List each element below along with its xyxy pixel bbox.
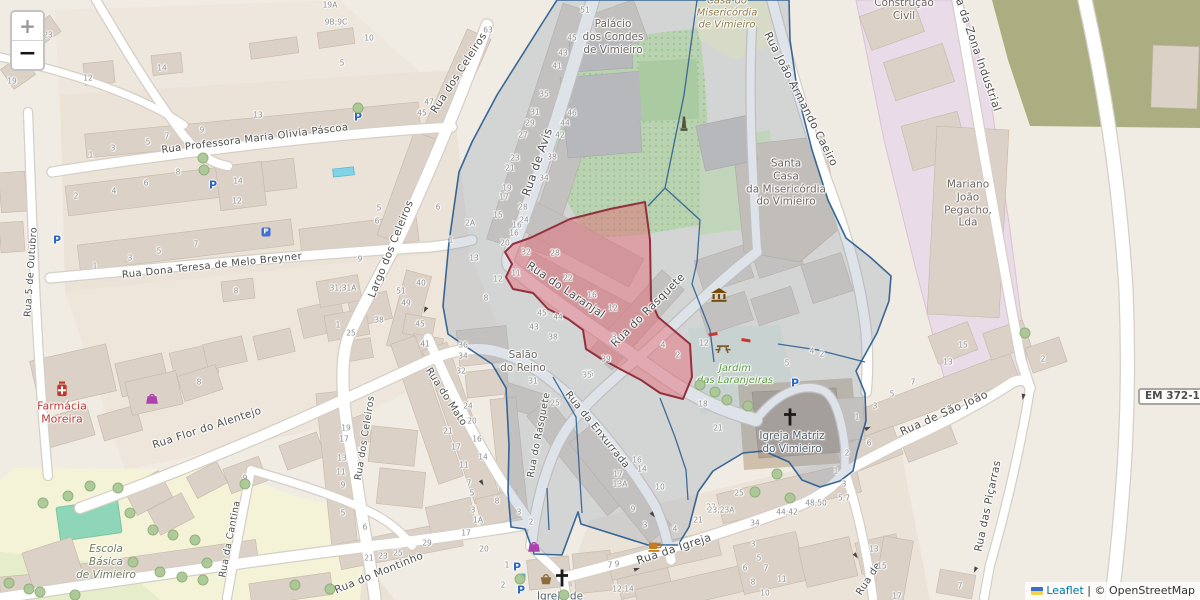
- map-canvas: [0, 0, 1200, 600]
- zoom-control: + −: [10, 10, 45, 71]
- zoom-in-button[interactable]: +: [12, 12, 43, 41]
- zoom-out-button[interactable]: −: [12, 41, 43, 69]
- leaflet-link[interactable]: Leaflet: [1046, 584, 1083, 597]
- leaflet-map[interactable]: Rua Professora Maria Olivia PáscoaRua Do…: [0, 0, 1200, 600]
- road-ref-badge: EM 372-1: [1138, 388, 1200, 405]
- attribution-bar: Leaflet | © OpenStreetMap: [1025, 582, 1200, 600]
- attribution-separator: |: [1087, 584, 1091, 597]
- pool: [333, 167, 355, 177]
- ukraine-flag-icon: [1031, 587, 1043, 595]
- openstreetmap-link[interactable]: © OpenStreetMap: [1094, 584, 1195, 597]
